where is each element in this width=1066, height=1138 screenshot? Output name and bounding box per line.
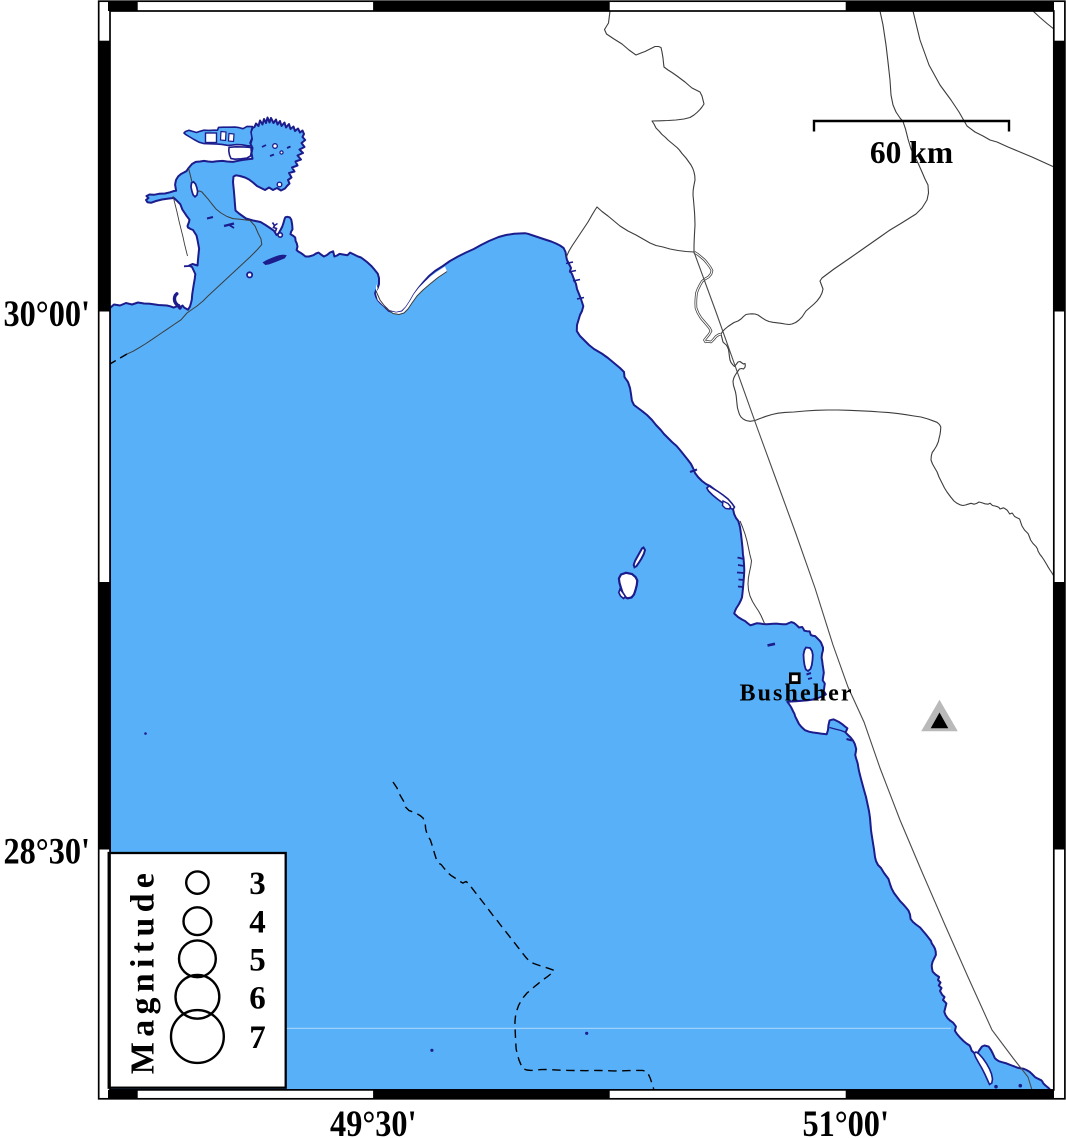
svg-text:49°30': 49°30' bbox=[330, 1104, 417, 1138]
svg-text:6: 6 bbox=[249, 980, 266, 1016]
svg-text:Busheher: Busheher bbox=[740, 681, 854, 707]
svg-text:28°30': 28°30' bbox=[4, 832, 91, 873]
svg-text:3: 3 bbox=[249, 866, 266, 902]
svg-text:7: 7 bbox=[249, 1020, 266, 1056]
svg-text:30°00': 30°00' bbox=[4, 294, 91, 335]
svg-text:4: 4 bbox=[249, 905, 266, 941]
svg-text:51°00': 51°00' bbox=[802, 1104, 889, 1138]
svg-text:5: 5 bbox=[249, 942, 266, 978]
svg-text:60 km: 60 km bbox=[870, 135, 953, 170]
svg-text:Magnitude: Magnitude bbox=[125, 868, 162, 1074]
